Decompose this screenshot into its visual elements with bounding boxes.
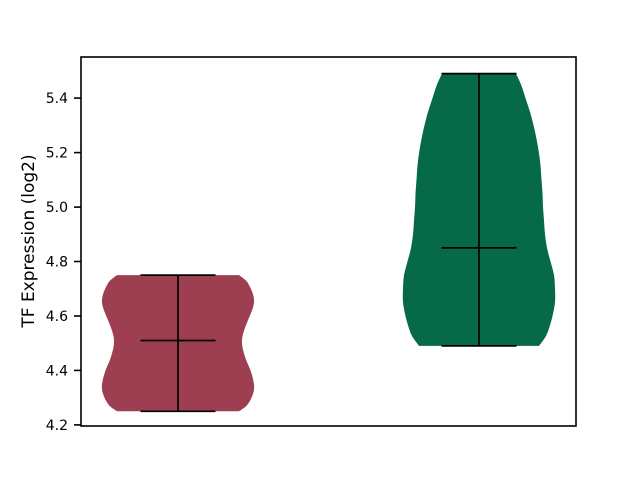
- y-tick-label: 4.4: [46, 363, 68, 379]
- y-tick-label: 4.2: [46, 418, 68, 434]
- y-tick-label: 5.4: [46, 91, 68, 107]
- y-tick-label: 4.8: [46, 255, 68, 271]
- y-axis-ticks: 4.24.44.64.85.05.25.4: [46, 91, 81, 434]
- violin-chart-figure: 4.24.44.64.85.05.25.4 TF Expression (log…: [0, 0, 640, 480]
- plot-canvas: 4.24.44.64.85.05.25.4: [0, 0, 640, 480]
- y-axis-label: TF Expression (log2): [19, 154, 39, 327]
- y-tick-label: 4.6: [46, 309, 68, 325]
- violin-bodies: [102, 74, 555, 412]
- y-tick-label: 5.0: [46, 200, 68, 216]
- y-tick-label: 5.2: [46, 146, 68, 162]
